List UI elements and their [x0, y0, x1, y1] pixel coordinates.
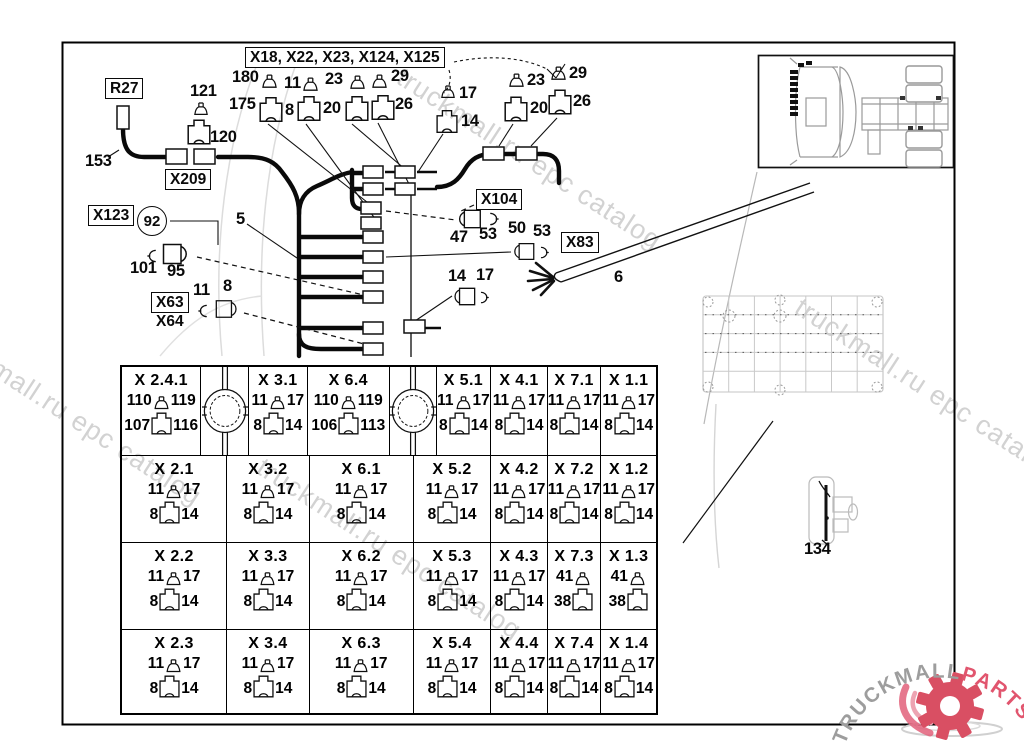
plug-range: 814	[439, 412, 488, 435]
pin-range: 1117	[335, 655, 388, 673]
terminal-blocks	[117, 106, 537, 355]
plug-icon	[437, 588, 458, 611]
connector-id: X 5.1	[444, 372, 483, 390]
pin-range: 1117	[335, 481, 388, 499]
table-cell-X7.3: X 7.34138	[548, 543, 602, 629]
table-cell-X6.3: X 6.31117814	[310, 630, 414, 713]
pin-icon	[510, 659, 527, 673]
plug-range: 814	[428, 588, 477, 611]
plug-icon	[346, 97, 368, 121]
pin-range: 1117	[242, 655, 295, 673]
connector-id: X 7.2	[554, 461, 593, 479]
pin-range: 41	[611, 568, 647, 586]
plug-range: 814	[495, 588, 544, 611]
pin-range: 1117	[602, 392, 655, 410]
plug-icon	[504, 501, 525, 524]
round-connector-icon	[390, 367, 436, 455]
pin-icon	[620, 659, 637, 673]
table-cell-X7.4: X 7.41117814	[548, 630, 602, 713]
plug-icon	[298, 97, 320, 121]
pin-icon	[263, 75, 276, 87]
pin-icon	[195, 103, 207, 114]
pin-icon	[259, 659, 276, 673]
round-connector-icon	[202, 367, 248, 455]
connector-id: X 7.1	[554, 372, 593, 390]
plug-icon	[253, 501, 274, 524]
cable-item-6	[528, 183, 814, 295]
plug-range: 814	[604, 501, 653, 524]
pin-icon	[340, 396, 357, 410]
plug-range: 814	[243, 501, 292, 524]
table-cell-X2.2: X 2.21117814	[122, 543, 227, 629]
plug-range: 814	[243, 588, 292, 611]
pin-range: 1117	[252, 392, 305, 410]
plug-icon	[504, 588, 525, 611]
pin-icon	[574, 572, 591, 586]
socket-icon	[460, 210, 481, 227]
pin-icon	[165, 659, 182, 673]
pin-icon	[304, 78, 317, 90]
connector-id: X 1.3	[609, 548, 648, 566]
table-row: X 2.11117814X 3.21117814X 6.11117814X 5.…	[122, 456, 656, 543]
table-cell-X4.4: X 4.41117814	[491, 630, 548, 713]
pin-range: 1117	[548, 481, 601, 499]
connector-id: X 2.4.1	[134, 372, 188, 390]
pin-range: 110119	[127, 392, 196, 410]
pin-range: 1117	[148, 568, 201, 586]
connector-id: X 1.2	[609, 461, 648, 479]
plug-range: 38	[554, 588, 594, 611]
pin-icon	[510, 74, 523, 86]
connector-id: X 6.1	[342, 461, 381, 479]
pin-icon	[351, 76, 364, 88]
plug-icon	[572, 588, 593, 611]
pin-icon	[153, 396, 170, 410]
plug-icon	[505, 97, 527, 121]
plug-icon	[627, 588, 648, 611]
connector-id: X 5.3	[432, 548, 471, 566]
table-cell-X6.2: X 6.21117814	[310, 543, 414, 629]
plug-range: 107116	[124, 412, 198, 435]
plug-icon	[449, 412, 470, 435]
plug-range: 106113	[311, 412, 385, 435]
pin-icon	[510, 485, 527, 499]
connector-id: X 6.4	[329, 372, 368, 390]
pin-range: 110119	[314, 392, 383, 410]
table-cell-X4.2: X 4.21117814	[491, 456, 548, 542]
plug-icon	[559, 675, 580, 698]
pin-icon	[455, 396, 472, 410]
table-cell-X2.4.1: X 2.4.1110119107116	[122, 367, 201, 455]
plug-range: 814	[604, 675, 653, 698]
plug-icon	[346, 675, 367, 698]
socket-half-icon	[490, 213, 498, 224]
plug-icon	[504, 412, 525, 435]
table-cell-X1.3: X 1.34138	[601, 543, 656, 629]
connector-id: X 5.2	[432, 461, 471, 479]
plug-icon	[437, 111, 457, 133]
plug-range: 814	[337, 675, 386, 698]
connector-id: X 7.3	[554, 548, 593, 566]
mounting-plate-panel	[703, 295, 883, 395]
connector-id: X 1.4	[609, 635, 648, 653]
pin-range: 1117	[148, 655, 201, 673]
plug-icon	[614, 412, 635, 435]
plug-icon	[188, 120, 210, 144]
socket-half-icon	[541, 247, 549, 257]
table-cell-X1.4: X 1.41117814	[601, 630, 656, 713]
pin-range: 1117	[493, 392, 546, 410]
pin-range: 1117	[335, 568, 388, 586]
pin-icon	[443, 485, 460, 499]
connector-id: X 3.1	[258, 372, 297, 390]
pin-range: 1117	[426, 655, 479, 673]
pin-range: 1117	[426, 568, 479, 586]
connector-id: X 6.3	[342, 635, 381, 653]
pin-range: 1117	[437, 392, 490, 410]
plug-icon	[437, 675, 458, 698]
plug-range: 814	[150, 588, 199, 611]
table-cell-X5.4: X 5.41117814	[414, 630, 491, 713]
pin-range: 1117	[242, 568, 295, 586]
pin-icon	[510, 396, 527, 410]
plug-range: 814	[550, 675, 599, 698]
plug-range: 814	[337, 588, 386, 611]
plug-icon	[372, 96, 394, 120]
plug-range: 814	[550, 501, 599, 524]
plug-icon	[559, 412, 580, 435]
plug-icon	[338, 412, 359, 435]
dashed-leader-lines	[197, 205, 474, 344]
table-row: X 2.31117814X 3.41117814X 6.31117814X 5.…	[122, 630, 656, 713]
pin-range: 1117	[242, 481, 295, 499]
socket-icon	[164, 245, 187, 264]
pin-icon	[620, 396, 637, 410]
table-cell-X3.1: X 3.11117814	[249, 367, 308, 455]
plug-icon	[151, 412, 172, 435]
table-cell-X5.2: X 5.21117814	[414, 456, 491, 542]
socket-icon	[455, 288, 475, 304]
table-cell-X5.1: X 5.11117814	[437, 367, 492, 455]
pin-icon	[269, 396, 286, 410]
plug-range: 814	[550, 412, 599, 435]
connector-id: X 2.1	[154, 461, 193, 479]
connector-id: X 2.3	[154, 635, 193, 653]
pin-icon	[165, 572, 182, 586]
table-cell-X3.3: X 3.31117814	[227, 543, 309, 629]
connector-table: X 2.4.1110119107116X 3.11117814X 6.41101…	[120, 365, 658, 715]
table-cell-X4.3: X 4.31117814	[491, 543, 548, 629]
plug-range: 814	[428, 501, 477, 524]
table-cell-X3.2: X 3.21117814	[227, 456, 309, 542]
table-cell-X2.3: X 2.31117814	[122, 630, 227, 713]
table-cell-X1.2: X 1.21117814	[601, 456, 656, 542]
table-cell-X6.1: X 6.11117814	[310, 456, 414, 542]
table-cell-X1.1: X 1.11117814	[601, 367, 656, 455]
connector-id: X 3.4	[248, 635, 287, 653]
connector-id: X 2.2	[154, 548, 193, 566]
socket-half-icon	[481, 292, 489, 302]
plug-icon	[159, 588, 180, 611]
table-cell-X6.4: X 6.4110119106113	[308, 367, 390, 455]
connector-icons	[147, 67, 570, 317]
pin-range: 1117	[493, 568, 546, 586]
table-cell-X7.1: X 7.11117814	[548, 367, 602, 455]
connector-id: X 1.1	[609, 372, 648, 390]
round-connector-symbol	[201, 367, 249, 455]
plug-range: 814	[253, 412, 302, 435]
connector-id: X 5.4	[432, 635, 471, 653]
connector-id: X 4.3	[499, 548, 538, 566]
truck-locator-thumbnail	[759, 56, 954, 168]
socket-icon	[515, 244, 534, 260]
table-cell-X5.3: X 5.31117814	[414, 543, 491, 629]
wiring-harness	[123, 129, 559, 356]
plug-icon	[159, 675, 180, 698]
plug-range: 814	[495, 501, 544, 524]
pin-icon	[373, 75, 386, 87]
plug-icon	[253, 675, 274, 698]
plug-range: 38	[609, 588, 649, 611]
plug-range: 814	[495, 675, 544, 698]
round-connector-symbol	[390, 367, 437, 455]
plug-range: 814	[428, 675, 477, 698]
plug-icon	[504, 675, 525, 698]
table-row: X 2.4.1110119107116X 3.11117814X 6.41101…	[122, 367, 656, 456]
pin-icon	[565, 396, 582, 410]
plug-icon	[614, 675, 635, 698]
plug-icon	[346, 588, 367, 611]
plug-icon	[549, 90, 571, 114]
plug-range: 814	[337, 501, 386, 524]
plug-icon	[559, 501, 580, 524]
socket-half-icon	[147, 250, 155, 261]
pin-range: 1117	[602, 655, 655, 673]
pin-range: 41	[556, 568, 592, 586]
table-row: X 2.21117814X 3.31117814X 6.21117814X 5.…	[122, 543, 656, 630]
pin-range: 1117	[148, 481, 201, 499]
pin-icon	[510, 572, 527, 586]
plug-icon	[346, 501, 367, 524]
pin-range: 1117	[548, 392, 601, 410]
connector-id: X 4.2	[499, 461, 538, 479]
connector-id: X 3.3	[248, 548, 287, 566]
plug-icon	[437, 501, 458, 524]
pin-icon	[620, 485, 637, 499]
truckmall-parts-logo: TRUCKMALLPARTS	[828, 660, 1024, 748]
pin-range: 1117	[426, 481, 479, 499]
plug-range: 814	[495, 412, 544, 435]
plug-range: 814	[150, 675, 199, 698]
plug-range: 814	[604, 412, 653, 435]
pin-icon	[165, 485, 182, 499]
plug-icon	[260, 98, 282, 122]
pin-range: 1117	[493, 655, 546, 673]
pin-icon	[443, 572, 460, 586]
pin-range: 1117	[548, 655, 601, 673]
connector-id: X 3.2	[248, 461, 287, 479]
connector-id: X 6.2	[342, 548, 381, 566]
pin-icon	[259, 485, 276, 499]
plug-range: 814	[243, 675, 292, 698]
wire-strands	[528, 263, 554, 295]
pin-icon	[565, 485, 582, 499]
part-134-bracket	[809, 477, 858, 546]
pin-range: 1117	[602, 481, 655, 499]
table-cell-X4.1: X 4.11117814	[491, 367, 548, 455]
plug-icon	[263, 412, 284, 435]
epc-catalog-page: truckmall.ru epc catalog truckmall.ru ep…	[0, 0, 1024, 750]
connector-id: X 4.1	[499, 372, 538, 390]
plug-icon	[159, 501, 180, 524]
pin-icon	[259, 572, 276, 586]
plug-icon	[253, 588, 274, 611]
connector-id: X 4.4	[499, 635, 538, 653]
table-cell-X7.2: X 7.21117814	[548, 456, 602, 542]
pin-icon	[565, 659, 582, 673]
pin-icon	[352, 659, 369, 673]
pin-icon	[352, 572, 369, 586]
connector-id: X 7.4	[554, 635, 593, 653]
pin-range: 1117	[493, 481, 546, 499]
plug-range: 814	[150, 501, 199, 524]
table-cell-X3.4: X 3.41117814	[227, 630, 309, 713]
pin-icon	[443, 659, 460, 673]
pin-icon	[352, 485, 369, 499]
plug-icon	[614, 501, 635, 524]
pin-icon	[629, 572, 646, 586]
table-cell-X2.1: X 2.11117814	[122, 456, 227, 542]
